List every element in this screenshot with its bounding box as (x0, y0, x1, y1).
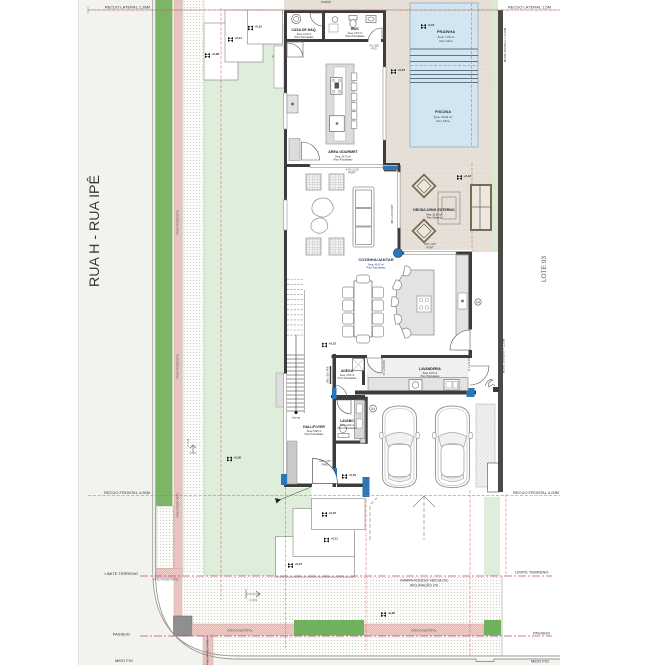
svg-text:Rev: Fibra: Rev: Fibra (437, 119, 450, 123)
svg-text:PISO PODOTÁTIL: PISO PODOTÁTIL (206, 639, 210, 664)
svg-text:120 x 270: 120 x 270 (319, 459, 331, 463)
svg-text:260 x 215: 260 x 215 (424, 242, 436, 246)
svg-text:PISO PODOTÁTIL: PISO PODOTÁTIL (176, 209, 180, 234)
svg-text:RAMPA ACESSO VEÍCULOS: RAMPA ACESSO VEÍCULOS (400, 579, 448, 583)
svg-text:BWC: BWC (351, 27, 360, 31)
svg-text:PISO PODOTÁTIL: PISO PODOTÁTIL (227, 629, 252, 633)
svg-text:LOTE 03: LOTE 03 (541, 256, 548, 282)
svg-text:Piso: Porcelanato: Piso: Porcelanato (295, 36, 314, 39)
svg-text:-0,15: -0,15 (428, 23, 435, 27)
svg-text:380 x 210 PORT: 380 x 210 PORT (390, 204, 394, 224)
svg-text:i = 2 %: i = 2 % (249, 598, 258, 602)
svg-text:Piso: Porcelanato: Piso: Porcelanato (334, 159, 353, 162)
svg-text:PISCINA: PISCINA (435, 109, 451, 114)
svg-text:180 x 210 P06: 180 x 210 P06 (326, 366, 330, 383)
svg-text:Piso: Madeira: Piso: Madeira (427, 217, 442, 220)
svg-text:PORÃO: PORÃO (321, 0, 332, 4)
svg-text:RECUO LATERAL 1,5M: RECUO LATERAL 1,5M (508, 5, 551, 10)
svg-text:+0,15: +0,15 (329, 511, 337, 515)
svg-text:+0,15: +0,15 (349, 473, 357, 477)
svg-text:Piso: Porcelanato: Piso: Porcelanato (338, 377, 357, 380)
svg-text:04: 04 (371, 407, 375, 411)
svg-text:Piso: Porcelanato: Piso: Porcelanato (305, 433, 324, 436)
svg-text:MURO DIVISA H = 2,20M: MURO DIVISA H = 2,20M (502, 338, 506, 373)
svg-text:+0,08: +0,08 (212, 52, 220, 56)
svg-text:PASSEIO: PASSEIO (113, 632, 130, 637)
svg-text:+0,13: +0,13 (464, 174, 472, 178)
svg-text:+0,00: +0,00 (388, 611, 396, 615)
svg-text:+0,15: +0,15 (255, 25, 263, 29)
svg-text:04: 04 (476, 301, 480, 305)
svg-text:MEIO FIO: MEIO FIO (115, 658, 133, 663)
svg-text:COZINHA/JANTAR: COZINHA/JANTAR (358, 257, 393, 262)
svg-text:Piso: Porcelanato: Piso: Porcelanato (346, 35, 365, 38)
svg-text:LIMITE TERRENO: LIMITE TERRENO (515, 570, 549, 575)
svg-text:MURO DIVISA H = 2,20M: MURO DIVISA H = 2,20M (503, 27, 507, 62)
svg-text:+0,07: +0,07 (295, 562, 303, 566)
svg-text:CASA DE MAQ.: CASA DE MAQ. (292, 28, 317, 32)
svg-text:RUA H - RUA IPÊ: RUA H - RUA IPÊ (86, 175, 103, 287)
svg-text:+0,15: +0,15 (329, 342, 337, 346)
svg-text:DECK/LIVING EXTERNO: DECK/LIVING EXTERNO (413, 208, 455, 212)
svg-text:ADEGA: ADEGA (341, 369, 354, 373)
svg-text:70 x 210 P04: 70 x 210 P04 (467, 356, 471, 372)
svg-text:Piso: Porcelanato: Piso: Porcelanato (338, 427, 357, 430)
svg-text:+0,15: +0,15 (398, 68, 406, 72)
svg-text:PISO PODOTÁTIL: PISO PODOTÁTIL (411, 629, 436, 633)
svg-text:LAVANDERIA: LAVANDERIA (419, 367, 441, 371)
svg-text:PRAINHA: PRAINHA (437, 29, 455, 34)
svg-text:+0,05: +0,05 (234, 456, 242, 460)
svg-text:70 x 210 P03: 70 x 210 P03 (382, 360, 386, 376)
svg-text:Acima: Acima (292, 416, 301, 420)
svg-text:Rev: Fibra: Rev: Fibra (440, 39, 453, 43)
svg-text:Piso: Porcelanato: Piso: Porcelanato (367, 267, 386, 270)
svg-text:PISO PODOTÁTIL: PISO PODOTÁTIL (176, 492, 180, 517)
svg-text:i = 2 %: i = 2 % (186, 438, 190, 447)
svg-text:Piso: Porcelanato: Piso: Porcelanato (421, 375, 440, 378)
svg-text:PORT: PORT (426, 246, 434, 250)
svg-text:LAVABO: LAVABO (340, 419, 354, 423)
svg-text:PORT: PORT (348, 171, 356, 175)
svg-text:+0,11: +0,11 (235, 36, 243, 40)
svg-text:ÁREA GOURMET: ÁREA GOURMET (328, 149, 358, 154)
svg-text:PISO PODOTÁTIL: PISO PODOTÁTIL (176, 353, 180, 378)
svg-text:RECUO LATERAL 1,36M: RECUO LATERAL 1,36M (105, 5, 150, 10)
svg-text:RECUO FRONTAL 4,00M: RECUO FRONTAL 4,00M (513, 490, 559, 495)
svg-text:INCLINAÇÃO 2%: INCLINAÇÃO 2% (410, 583, 439, 588)
svg-text:+0,11: +0,11 (331, 537, 339, 541)
svg-text:PM01: PM01 (322, 463, 329, 467)
svg-text:PV3: PV3 (372, 47, 377, 51)
svg-text:MEIO FIO: MEIO FIO (531, 659, 549, 664)
svg-text:PASSEIO: PASSEIO (533, 631, 550, 636)
svg-text:RECUO FRONTAL 4,90M: RECUO FRONTAL 4,90M (104, 490, 150, 495)
svg-text:LIMITE TERRENO: LIMITE TERRENO (105, 571, 139, 576)
svg-text:PISO PODOTÁTIL: PISO PODOTÁTIL (153, 578, 178, 582)
svg-text:HALL/FOYER: HALL/FOYER (303, 425, 325, 429)
